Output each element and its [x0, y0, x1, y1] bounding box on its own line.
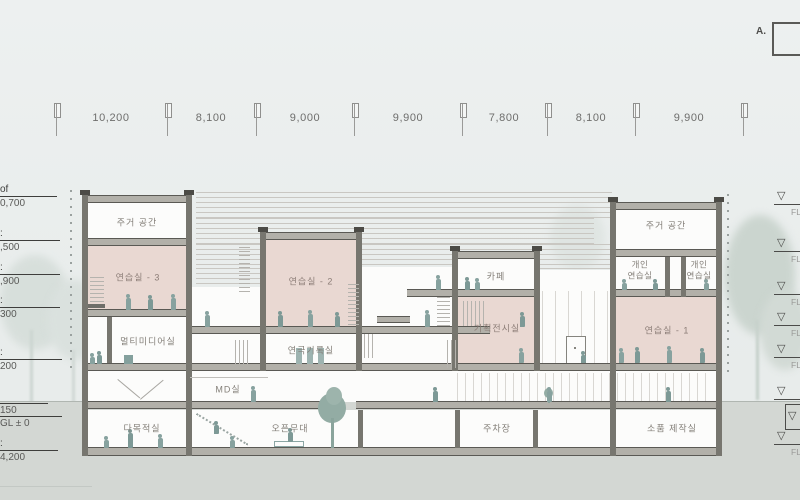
person-figure [306, 310, 314, 327]
foundation-slab [82, 447, 722, 456]
courtyard-tree-trunk [331, 418, 334, 448]
room-label-theater-archive: 연극기록실 [288, 344, 334, 357]
person-figure [620, 279, 628, 290]
level-marker-left: 150 [0, 403, 48, 416]
level-triangle-icon: ▽ [777, 238, 785, 249]
level-value: ,900 [0, 275, 60, 287]
level-triangle-icon: ▽ [777, 281, 785, 292]
room-label-housing-left: 주거 공간 [117, 216, 158, 229]
dimension-tick-line [354, 104, 355, 136]
level-marker-left: : 200 [0, 347, 62, 372]
detail-callout-box [772, 22, 800, 56]
level-marker-left: : 300 [0, 295, 60, 320]
roof-slab [260, 232, 362, 240]
room-label-multimedia: 멀티미디어실 [120, 335, 176, 348]
dimension-tick-line [256, 104, 257, 136]
person-figure [146, 295, 154, 310]
level-marker-left: : 4,200 [0, 438, 58, 463]
roof-slab [452, 251, 540, 259]
floor-slab [82, 363, 722, 371]
room-label-housing-right: 주거 공간 [646, 219, 687, 232]
level-value: ,500 [0, 241, 60, 253]
person-figure [333, 312, 341, 327]
level-marker-right: ▽FL [774, 431, 800, 455]
floor-slab [82, 238, 192, 246]
stair [437, 297, 450, 326]
level-label: FL [791, 360, 800, 370]
person-figure [517, 348, 525, 363]
dimension-value: 9,900 [393, 112, 424, 124]
louver-lines [196, 192, 612, 218]
louver-lines [196, 268, 260, 289]
dimension-tick-line [743, 104, 744, 136]
stair [348, 284, 359, 326]
courtyard-tree-canopy [326, 387, 342, 405]
person-figure [617, 348, 625, 363]
level-marker-right: ▽FL [774, 281, 800, 305]
level-marker-left: GL ± 0 [0, 416, 62, 429]
dimension-tick-line [547, 104, 548, 136]
level-label: FL [791, 447, 800, 457]
parapet-cap [608, 197, 618, 202]
detail-callout-label: A. [756, 26, 766, 37]
dimension-value: 8,100 [196, 112, 227, 124]
basement-wall [358, 410, 363, 448]
room-label-practice3: 연습실 - 3 [116, 271, 161, 284]
level-value: 200 [0, 360, 62, 372]
wall [716, 202, 722, 456]
room-label-prop-workshop: 소품 제작실 [647, 422, 697, 435]
walkway-slab [192, 326, 490, 334]
level-marker-right: ▽FL [774, 344, 800, 368]
person-figure [434, 275, 442, 290]
walkway-slab [407, 289, 540, 297]
level-triangle-icon: ▽ [777, 431, 785, 442]
wall [107, 317, 112, 363]
wall [610, 202, 616, 456]
person-figure [212, 421, 220, 434]
wall [665, 257, 670, 297]
level-triangle-icon: ▽ [777, 191, 785, 202]
person-figure [249, 386, 257, 402]
stair [364, 334, 373, 358]
louver-lines [196, 218, 594, 244]
level-value: 4,200 [0, 451, 58, 463]
roof-slab [610, 202, 722, 210]
parapet-cap [184, 190, 194, 195]
room-label-practice1: 연습실 - 1 [645, 324, 690, 337]
parapet-cap [532, 246, 542, 251]
floor-slab [610, 249, 722, 257]
podium [124, 355, 133, 364]
level-value: 0,700 [0, 197, 57, 209]
dimension-tick-line [635, 104, 636, 136]
level-marker-box: ▽ [785, 404, 800, 430]
level-marker-right: ▽FL [774, 191, 800, 215]
curtain-wall [457, 373, 712, 401]
level-label: FL [791, 254, 800, 264]
level-marker-left: of 0,700 [0, 184, 57, 209]
landing-slab [377, 316, 410, 323]
person-figure [124, 294, 132, 310]
dimension-tick-line [56, 104, 57, 136]
level-value: 300 [0, 308, 60, 320]
wall [260, 232, 266, 371]
person-figure [651, 279, 659, 290]
person-figure [665, 346, 673, 363]
person-figure [203, 311, 211, 327]
person-figure [431, 387, 439, 402]
person-figure [102, 436, 110, 448]
level-name: : [0, 295, 60, 308]
level-label: FL [791, 207, 800, 217]
room-label-multipurpose: 다목적실 [123, 422, 160, 435]
room-label-open-stage: 오픈무대 [271, 422, 308, 435]
level-value: GL ± 0 [0, 417, 62, 429]
room-label-practice2: 연습실 - 2 [289, 275, 334, 288]
stair [447, 340, 459, 368]
person-figure [545, 387, 553, 402]
parapet-cap [80, 190, 90, 195]
room-label-exhibition: 기획전시실 [474, 322, 520, 335]
parapet-cap [450, 246, 460, 251]
level-marker-right: ▽FL [774, 312, 800, 336]
room-label-cafe: 카페 [487, 270, 506, 283]
wall [186, 195, 192, 456]
roof-slab [82, 195, 192, 203]
ground-line [0, 486, 92, 487]
level-triangle-icon: ▽ [788, 409, 796, 422]
parapet-cap [354, 227, 364, 232]
wall [681, 257, 686, 297]
stair-base [88, 304, 105, 308]
section-drawing: 주거 공간 연습실 - 3 멀티미디어실 연습실 - 2 연극기록실 카페 기획… [0, 0, 800, 500]
room-label-parking: 주차장 [483, 422, 511, 435]
level-name: : [0, 438, 58, 451]
person-figure [579, 351, 587, 363]
person-figure [633, 347, 641, 363]
dimension-value: 10,200 [92, 112, 129, 124]
ground-slab [82, 401, 320, 409]
stair [235, 340, 248, 364]
dimension-tick-line [167, 104, 168, 136]
floor-slab [82, 309, 192, 317]
room-label-md: MD실 [215, 383, 240, 396]
dimension-value: 7,800 [489, 112, 520, 124]
level-label: FL [791, 297, 800, 307]
glass-line [190, 377, 268, 378]
basement-wall [533, 410, 538, 448]
level-name: : [0, 347, 62, 360]
dimension-value: 9,000 [290, 112, 321, 124]
person-figure [95, 351, 103, 364]
door-handle [574, 347, 576, 349]
level-name: : [0, 262, 60, 275]
basement-wall [455, 410, 460, 448]
person-figure [463, 277, 471, 290]
level-triangle-icon: ▽ [777, 344, 785, 355]
person-figure [473, 278, 481, 290]
stair [239, 247, 250, 293]
person-figure [156, 434, 164, 448]
level-label: FL [791, 328, 800, 338]
grid-dotted-line [70, 190, 72, 372]
level-marker-left: : ,900 [0, 262, 60, 287]
basement-floor [88, 410, 716, 448]
person-figure [276, 311, 284, 327]
level-marker-right: ▽FL [774, 238, 800, 262]
tree-trunk [72, 350, 75, 405]
tree-trunk [756, 320, 759, 400]
person-figure [169, 294, 177, 310]
dimension-value: 8,100 [576, 112, 607, 124]
room-label-personal-practice-a: 개인 연습실 [628, 259, 653, 280]
level-value: 150 [0, 404, 48, 416]
person-figure [664, 387, 672, 402]
level-marker-left: : ,500 [0, 228, 60, 253]
person-figure [698, 348, 706, 363]
level-triangle-icon: ▽ [777, 312, 785, 323]
wall [82, 195, 88, 456]
parapet-cap [714, 197, 724, 202]
room-label-personal-practice-b: 개인 연습실 [687, 259, 712, 280]
grid-dotted-line [727, 194, 729, 377]
person-figure [423, 310, 431, 327]
dimension-value: 9,900 [674, 112, 705, 124]
louver-lines [196, 244, 610, 268]
level-triangle-icon: ▽ [777, 386, 785, 397]
person-figure [702, 279, 710, 290]
person-figure [228, 436, 236, 448]
level-name: : [0, 228, 60, 241]
ground-slab [356, 401, 722, 409]
dimension-tick-line [462, 104, 463, 136]
wall [534, 251, 540, 371]
level-name: of [0, 184, 57, 197]
parapet-cap [258, 227, 268, 232]
